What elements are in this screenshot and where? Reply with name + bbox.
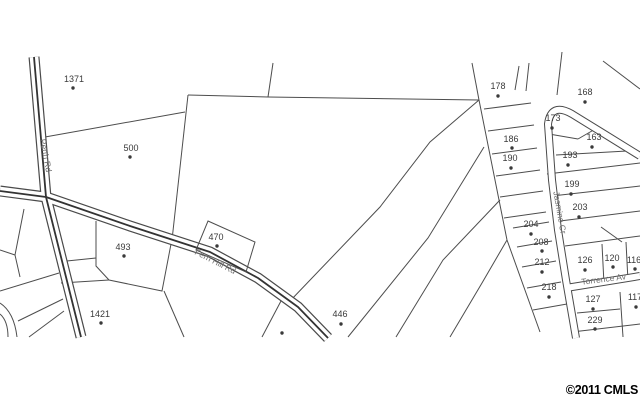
lot-dot bbox=[577, 215, 580, 218]
lot-label-1371: 1371 bbox=[64, 74, 84, 84]
lot-dot bbox=[71, 86, 74, 89]
lot-dot bbox=[540, 270, 543, 273]
lot-dot bbox=[583, 268, 586, 271]
lot-label-127: 127 bbox=[585, 294, 600, 304]
lot-label-199: 199 bbox=[564, 179, 579, 189]
lot-dot bbox=[633, 267, 636, 270]
lot-dot bbox=[215, 244, 218, 247]
lot-dot bbox=[611, 265, 614, 268]
lot-dot bbox=[547, 295, 550, 298]
lot-dot bbox=[99, 321, 102, 324]
lot-label-116: 116 bbox=[627, 255, 640, 265]
lot-dot bbox=[510, 146, 513, 149]
lot-dot bbox=[591, 307, 594, 310]
lot-dot bbox=[569, 192, 572, 195]
lot-label-126: 126 bbox=[577, 255, 592, 265]
lot-label-186: 186 bbox=[503, 134, 518, 144]
lot-label-446: 446 bbox=[332, 309, 347, 319]
lot-dot bbox=[122, 254, 125, 257]
lot-label-212: 212 bbox=[534, 257, 549, 267]
lot-dot bbox=[590, 145, 593, 148]
lot-dot bbox=[280, 331, 283, 334]
lot-label-203: 203 bbox=[572, 202, 587, 212]
lot-dot bbox=[583, 100, 586, 103]
lot-dot bbox=[339, 322, 342, 325]
lot-label-173: 173 bbox=[545, 113, 560, 123]
lot-dot bbox=[550, 126, 553, 129]
lot-label-208: 208 bbox=[533, 237, 548, 247]
lot-label-500: 500 bbox=[123, 143, 138, 153]
lot-label-470: 470 bbox=[208, 232, 223, 242]
lot-label-218: 218 bbox=[541, 282, 556, 292]
lot-label-120: 120 bbox=[604, 253, 619, 263]
lot-dot bbox=[593, 327, 596, 330]
lot-label-193: 193 bbox=[562, 150, 577, 160]
lot-label-190: 190 bbox=[502, 153, 517, 163]
lot-label-229: 229 bbox=[587, 315, 602, 325]
copyright-text: ©2011 CMLS bbox=[566, 383, 638, 397]
parcel-lines bbox=[0, 52, 640, 337]
lot-dot bbox=[509, 166, 512, 169]
lot-dot bbox=[496, 94, 499, 97]
parcel-map-screenshot: 1371500493470142144617816817316318619019… bbox=[0, 0, 640, 400]
lot-dot bbox=[540, 249, 543, 252]
lot-label-178: 178 bbox=[490, 81, 505, 91]
lot-dot bbox=[566, 163, 569, 166]
parcel-map: 1371500493470142144617816817316318619019… bbox=[0, 0, 640, 400]
lot-dot bbox=[529, 232, 532, 235]
lot-dot bbox=[128, 155, 131, 158]
lot-label-493: 493 bbox=[115, 242, 130, 252]
lot-label-168: 168 bbox=[577, 87, 592, 97]
lot-label-163: 163 bbox=[586, 132, 601, 142]
lot-label-1421: 1421 bbox=[90, 309, 110, 319]
lot-label-117: 117 bbox=[628, 292, 640, 302]
lot-dot bbox=[634, 305, 637, 308]
lot-label-204: 204 bbox=[523, 219, 538, 229]
road-network bbox=[0, 57, 640, 338]
